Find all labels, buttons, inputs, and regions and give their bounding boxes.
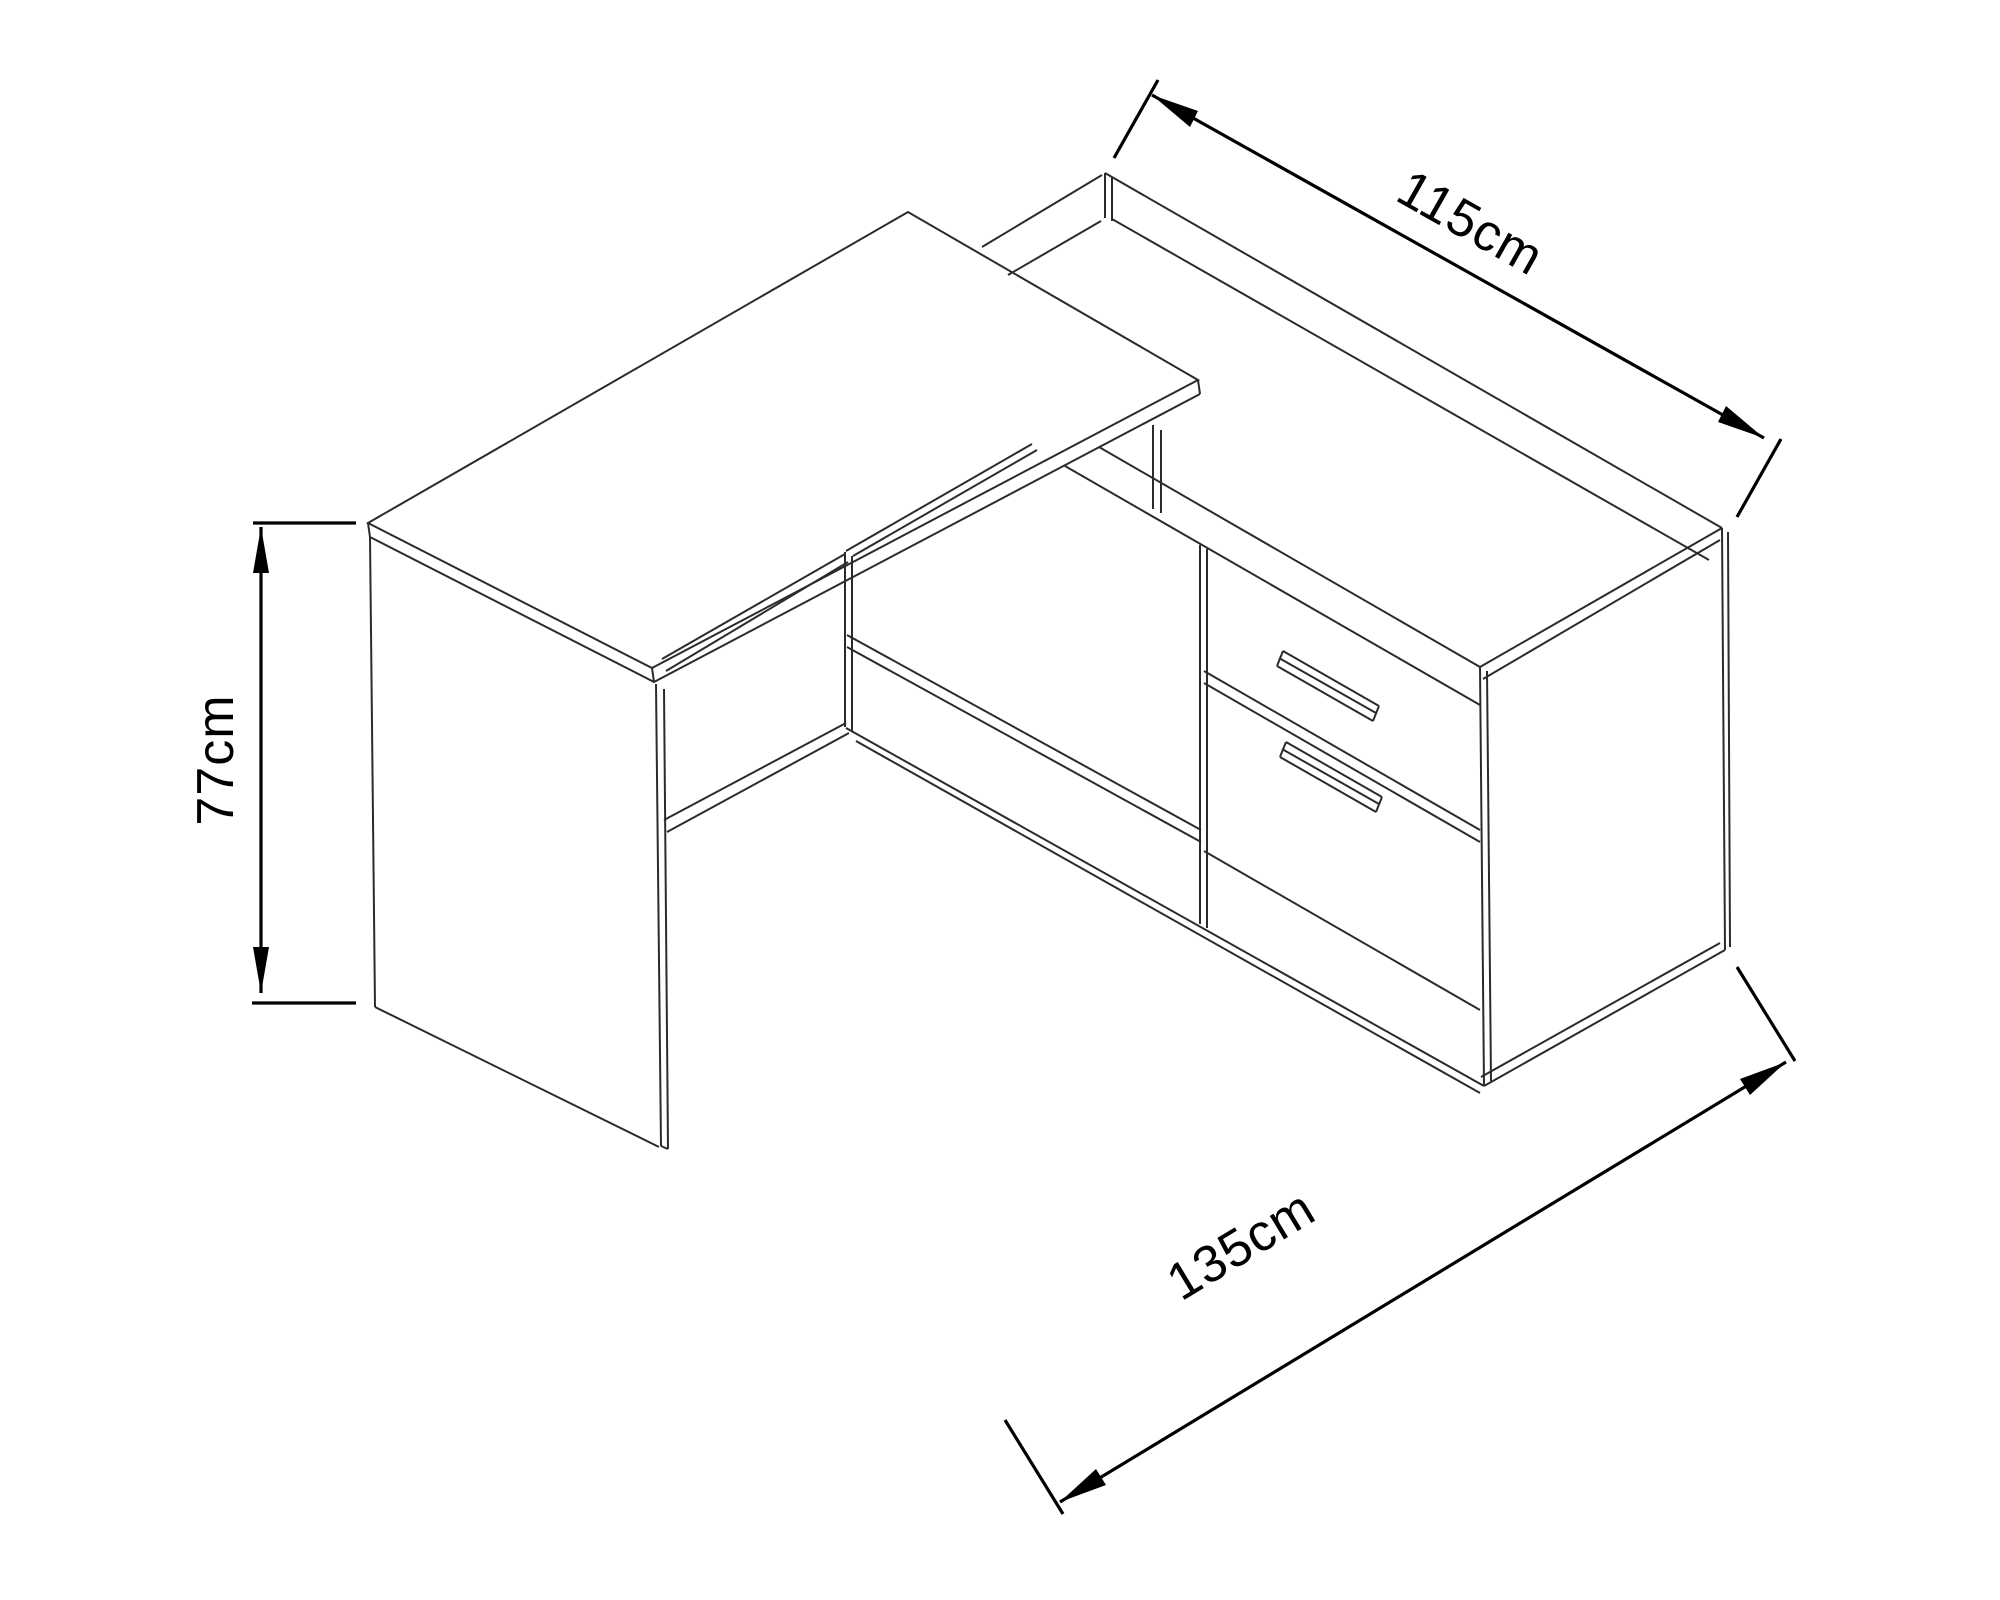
cabinet-compartment-wall [1200, 545, 1207, 928]
desk-top [368, 212, 1200, 682]
dimension-left-arrow-bottom [253, 947, 269, 993]
cabinet-bottom-edge [846, 728, 1725, 1093]
dimension-top: 115cm [1114, 80, 1781, 517]
dimension-bottom-label: 135cm [1157, 1179, 1325, 1312]
desk-modesty-panel [662, 554, 849, 832]
dimension-left: 77cm [187, 523, 356, 1003]
desk-left-panel [370, 537, 668, 1149]
dimension-bottom-arrow-end [1740, 1062, 1786, 1095]
dimension-top-line [1114, 80, 1781, 517]
cabinet-top [982, 173, 1722, 705]
dimension-left-label: 77cm [187, 694, 245, 825]
dimension-top-arrow-start [1152, 95, 1198, 127]
cabinet-right-panel [1480, 528, 1730, 1086]
dimension-left-line [252, 523, 356, 1003]
dimension-bottom: 135cm [1005, 967, 1795, 1514]
diagram-canvas: 115cm 77cm 135cm [0, 0, 2000, 1600]
cabinet-shelf [847, 635, 1201, 842]
desk-divider-panel [845, 444, 1037, 731]
dimension-top-arrow-end [1718, 406, 1764, 438]
dimension-left-arrow-top [253, 527, 269, 573]
drawer-handle [1277, 651, 1379, 721]
desk [368, 212, 1200, 1149]
dimension-top-label: 115cm [1388, 159, 1553, 287]
cabinet-drawer-lines [1204, 671, 1480, 1010]
drawing-page: 115cm 77cm 135cm [0, 0, 2000, 1600]
dimension-bottom-arrow-start [1060, 1469, 1106, 1502]
cabinet [846, 173, 1730, 1093]
dimension-bottom-line [1005, 967, 1795, 1514]
